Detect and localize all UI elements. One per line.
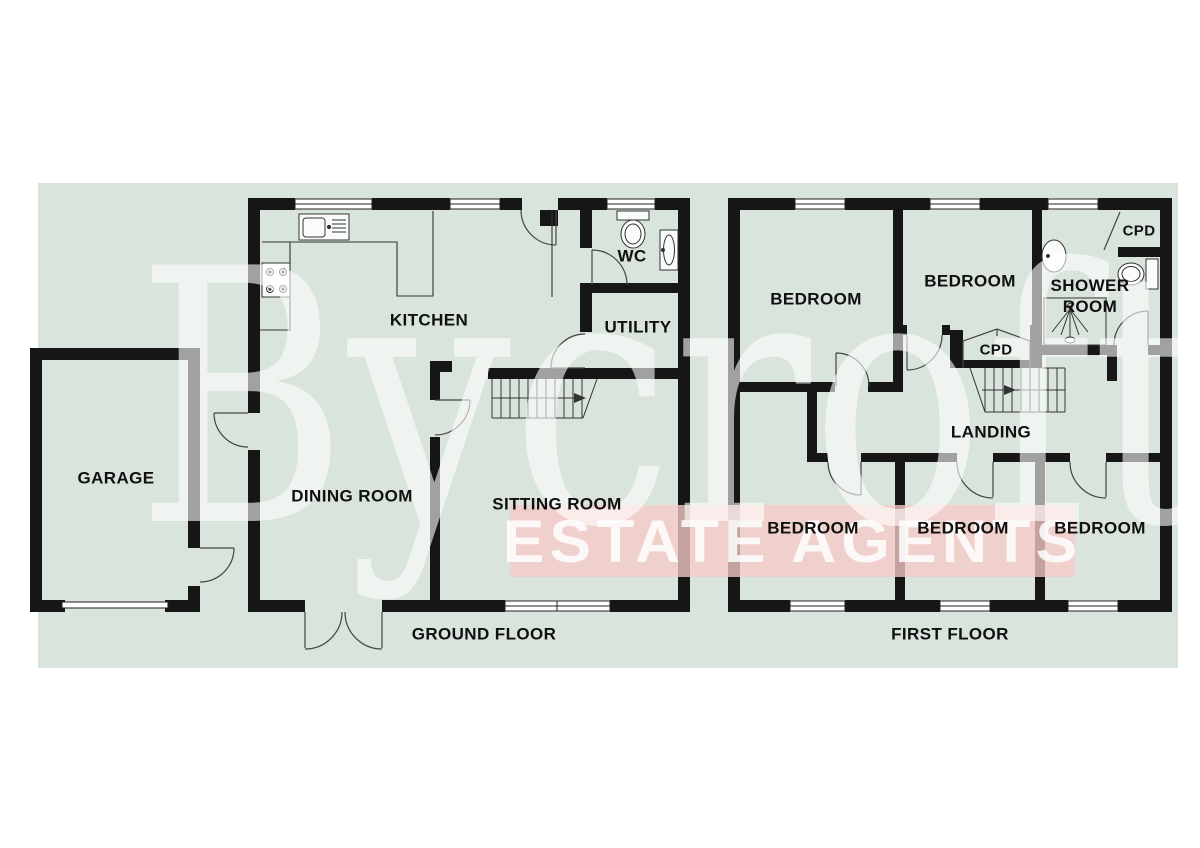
room-label-kitchen: KITCHEN: [390, 309, 468, 330]
room-label-cpd-landing: CPD: [980, 342, 1013, 361]
room-label-utility: UTILITY: [604, 316, 671, 337]
room-label-bedroom-bl: BEDROOM: [767, 517, 859, 538]
room-label-bedroom-bm: BEDROOM: [917, 517, 1009, 538]
room-label-landing: LANDING: [951, 421, 1031, 442]
room-label-shower-room: SHOWER ROOM: [1051, 275, 1130, 318]
shower-room-line1: SHOWER: [1051, 276, 1130, 295]
shower-room-line2: ROOM: [1063, 297, 1117, 316]
room-label-bedroom-br: BEDROOM: [1054, 517, 1146, 538]
room-label-sitting: SITTING ROOM: [492, 493, 621, 514]
room-label-bedroom-tm: BEDROOM: [924, 270, 1016, 291]
floor-title-ground: GROUND FLOOR: [412, 623, 557, 644]
room-label-cpd-top: CPD: [1123, 223, 1156, 242]
room-label-garage: GARAGE: [77, 467, 154, 488]
watermark-tagline-text: ESTATE AGENTS: [499, 505, 1087, 577]
room-label-bedroom-tl: BEDROOM: [770, 288, 862, 309]
room-label-dining: DINING ROOM: [291, 485, 413, 506]
floorplan-page: Bycroft ESTATE AGENTS GARAGE KITCHEN WC …: [0, 0, 1200, 848]
room-label-wc: WC: [617, 245, 646, 266]
floor-title-first: FIRST FLOOR: [891, 623, 1009, 644]
